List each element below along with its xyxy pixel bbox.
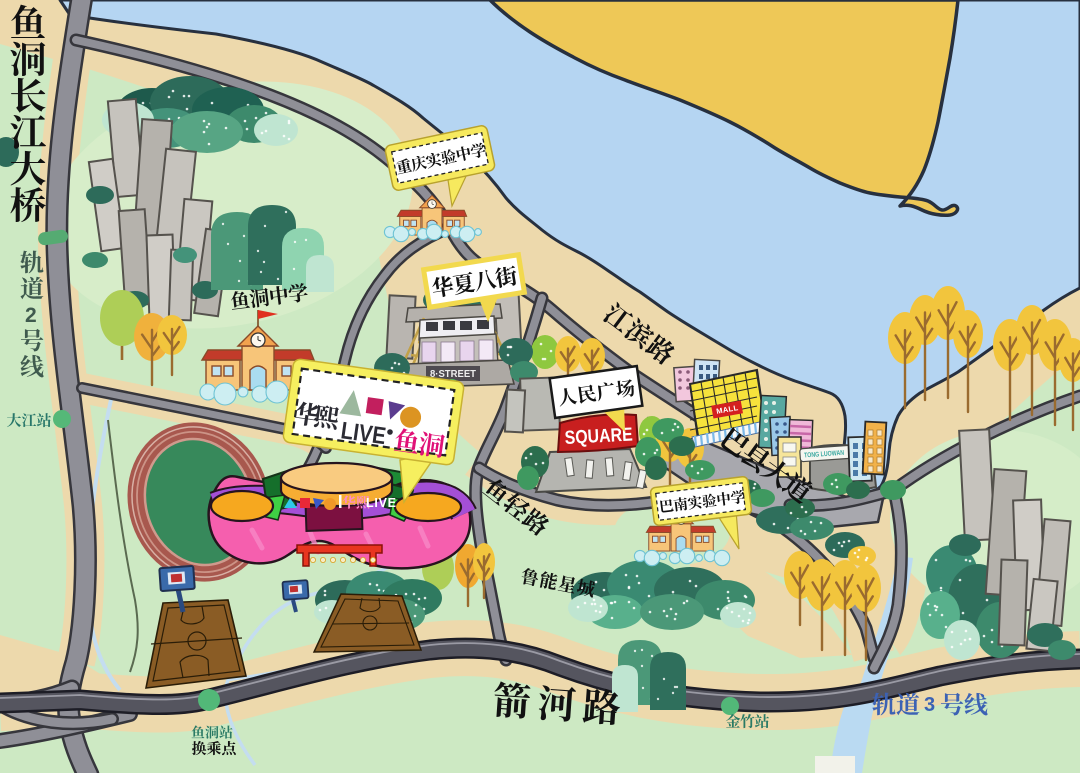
svg-text:LIVE: LIVE	[366, 496, 396, 510]
svg-text:2: 2	[25, 304, 37, 327]
svg-text:3: 3	[924, 694, 935, 716]
